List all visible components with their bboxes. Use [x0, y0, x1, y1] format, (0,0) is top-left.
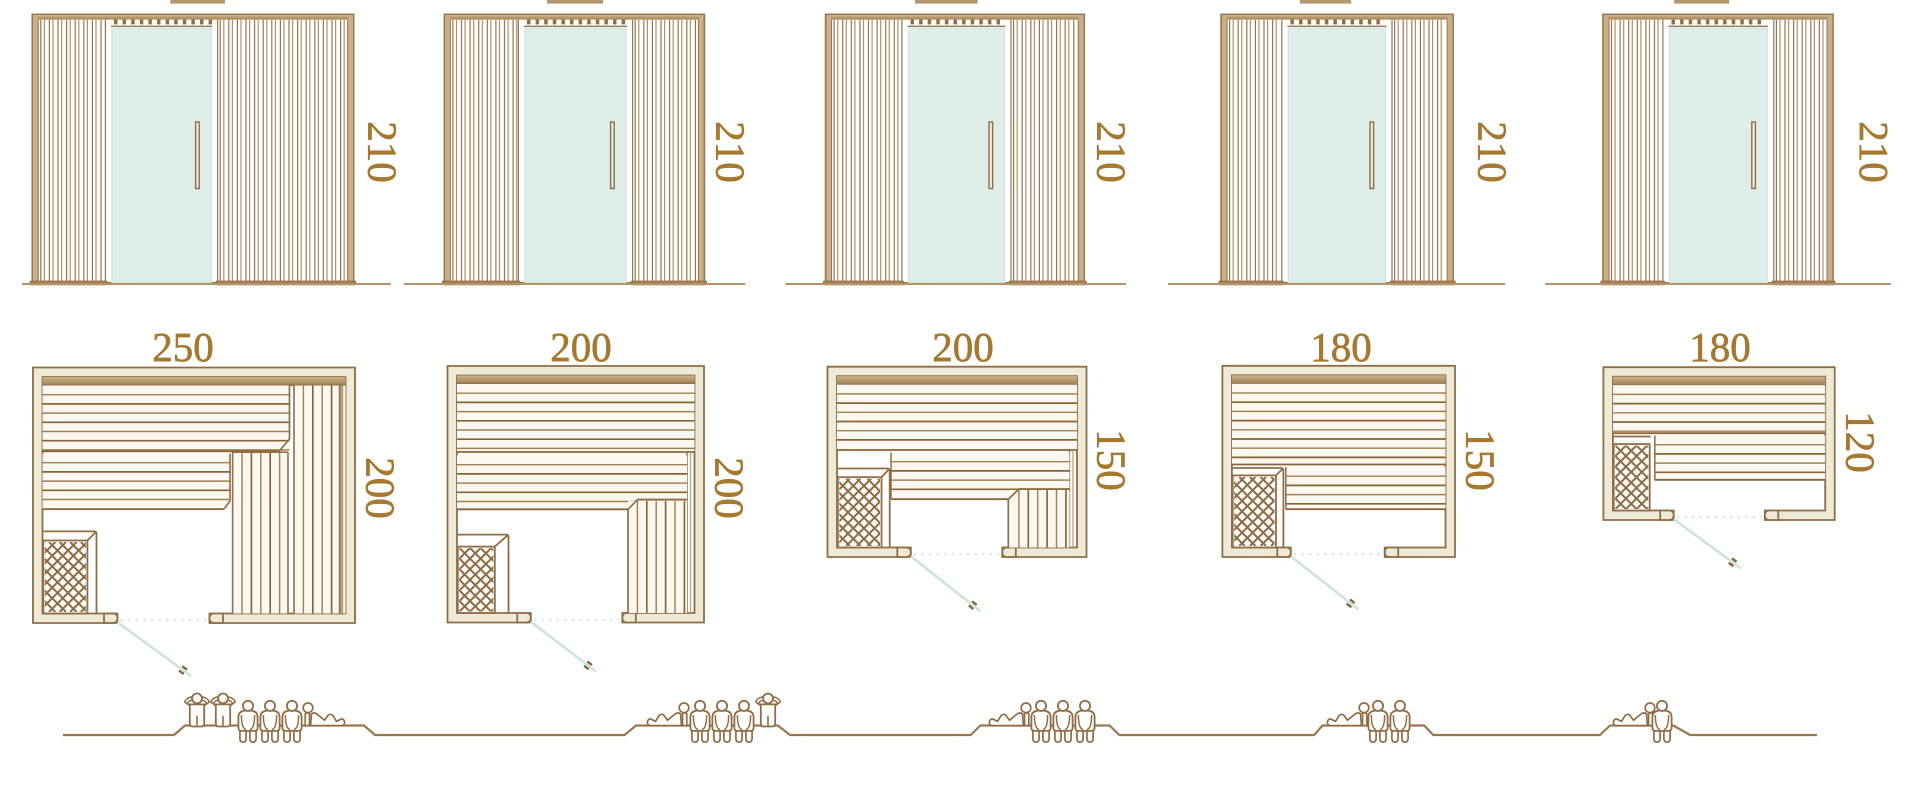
svg-text:210: 210: [707, 121, 753, 183]
svg-text:210: 210: [1851, 121, 1897, 183]
svg-text:200: 200: [357, 457, 403, 519]
svg-text:180: 180: [1689, 324, 1751, 370]
svg-text:210: 210: [1469, 121, 1515, 183]
svg-text:210: 210: [359, 121, 405, 183]
svg-text:180: 180: [1310, 324, 1372, 370]
svg-text:120: 120: [1837, 411, 1883, 473]
svg-text:200: 200: [550, 324, 612, 370]
svg-text:210: 210: [1088, 121, 1134, 183]
svg-text:150: 150: [1457, 429, 1503, 491]
svg-text:250: 250: [152, 324, 214, 370]
svg-text:150: 150: [1088, 429, 1134, 491]
svg-text:200: 200: [706, 457, 752, 519]
svg-text:200: 200: [932, 324, 994, 370]
